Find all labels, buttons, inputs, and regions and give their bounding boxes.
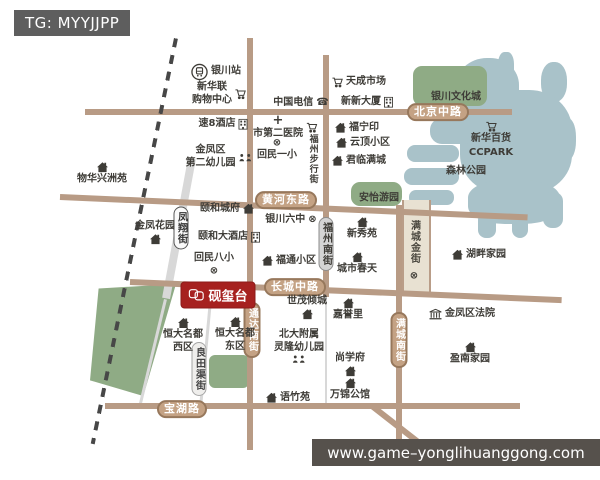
poi-xinxiu-yuan: 新秀苑: [347, 217, 377, 241]
poi-label: 福州步行街: [306, 134, 317, 184]
area-label-forest-park: 森林公园: [446, 162, 486, 177]
house-icon: [178, 318, 189, 328]
poi-xinhualian-mall: 新华联 购物中心: [192, 82, 246, 107]
house-icon: [345, 378, 356, 388]
school-icon: ⊗: [210, 266, 218, 276]
poi-label: 湖畔家园: [466, 249, 506, 262]
poi-label: 嘉誉里: [333, 309, 363, 322]
poi-label: 金凤花园: [135, 220, 175, 233]
poi-label: 银川六中: [265, 214, 305, 227]
poi-wuhua-xingzhouyuan: 物华兴洲苑: [77, 162, 127, 186]
poi-su8-hotel: 速8酒店: [199, 118, 248, 131]
poi-jinfeng-2nd-kindergarten: 金凤区 第二幼儿园: [186, 145, 253, 170]
poi-label: 恒大名都 西区: [163, 329, 203, 354]
hospital-cross-icon: +: [273, 114, 284, 127]
house-icon: [230, 317, 241, 327]
shopping-cart-icon: [486, 121, 497, 132]
building-icon: [384, 97, 393, 108]
road-label-mancheng-south: 满城南街: [391, 312, 408, 368]
building-icon: [251, 232, 260, 243]
area-label-anyi-garden: 安怡游园: [359, 189, 399, 204]
poi-yuzhuyuan: 语竹苑: [266, 392, 310, 405]
road-label-fengxiang: 凤翔街: [174, 207, 189, 250]
poi-yihe-chengfu: 颐和城府: [200, 203, 254, 216]
house-icon: [150, 234, 161, 244]
house-icon: [302, 309, 313, 319]
kids-icon: [239, 153, 253, 161]
poi-yunding-xiaoqu: 云顶小区: [336, 137, 390, 150]
poi-label: 速8酒店: [199, 118, 236, 131]
house-icon: [345, 366, 356, 376]
road-label-changcheng-middle: 长城中路: [264, 278, 326, 296]
building-icon: [238, 119, 247, 130]
house-icon: [343, 298, 354, 308]
poi-label: 尚学府: [335, 352, 365, 365]
area-label-culture-city: 银川文化城: [431, 88, 481, 103]
poi-yingnan-jiayuan: 盈南家园: [450, 342, 490, 366]
poi-xinhua-department-store: 新华百货 CCPARK: [469, 121, 513, 159]
poi-xinxin-building: 新新大厦: [341, 96, 393, 109]
poi-beida-kindergarten: 北大附属 灵隆幼儿园: [274, 329, 324, 363]
poi-label: 城市春天: [337, 263, 377, 276]
house-icon: [452, 250, 463, 260]
poi-label: 金凤区 第二幼儿园: [186, 145, 236, 170]
green-area-small: [209, 355, 249, 388]
poi-label: 天成市场: [346, 76, 386, 89]
house-icon: [332, 156, 343, 166]
school-icon: ⊗: [273, 138, 281, 148]
tg-badge: TG: MYYJJPP: [14, 10, 130, 36]
poi-yinchuan-station: 银川站: [191, 64, 241, 81]
poi-label: 恒大名都 东区: [215, 328, 255, 353]
poi-shangxuefu: 尚学府: [335, 352, 365, 376]
lake-shape: [512, 208, 528, 238]
house-icon: [357, 217, 368, 227]
poi-label: 语竹苑: [280, 392, 310, 405]
road-label-mancheng-golden: 满城金街: [408, 216, 421, 268]
courthouse-icon: [429, 309, 442, 320]
poi-hengda-west: 恒大名都 西区: [163, 318, 203, 354]
lake-shape: [543, 192, 563, 228]
house-icon: [335, 123, 346, 133]
poi-yinchuan-no6-middle: 银川六中 ⊗: [265, 214, 316, 227]
poi-china-telecom: 中国电信 ☎: [273, 97, 328, 110]
poi-funingyin: 福宁印: [335, 122, 379, 135]
poi-label: 新秀苑: [347, 228, 377, 241]
school-icon: ⊗: [308, 215, 316, 225]
shopping-cart-icon: [332, 77, 343, 88]
road-label-fuzhou-south: 福州南街: [319, 217, 334, 271]
lake-shape: [498, 52, 514, 82]
poi-label: 云顶小区: [350, 137, 390, 150]
lake-shape: [407, 145, 459, 162]
poi-label: 金凤区法院: [445, 308, 495, 321]
shopping-cart-icon: [307, 122, 318, 133]
house-icon: [336, 138, 347, 148]
poi-label: 万锦公馆: [330, 389, 370, 402]
poi-jiayuli: 嘉誉里: [333, 298, 363, 322]
poi-huimin-no8-primary: 回民八小 ⊗: [194, 252, 234, 276]
poi-label: 新新大厦: [341, 96, 381, 109]
shopping-cart-icon: [235, 89, 246, 100]
poi-label: 盈南家园: [450, 353, 490, 366]
house-icon: [262, 256, 273, 266]
project-marker-yanxitai: 砚玺台: [181, 283, 254, 308]
lake-shape: [558, 118, 576, 160]
poi-huimin-no1-primary: ⊗ 回民一小: [257, 138, 297, 162]
poi-hengda-east: 恒大名都 东区: [215, 317, 255, 353]
poi-tiancheng-market: 天成市场: [332, 76, 386, 89]
poi-futong-xiaoqu: 福通小区: [262, 255, 316, 268]
train-station-icon: [191, 64, 208, 81]
road-tongda-south: [247, 38, 253, 450]
poi-hupan-jiayuan: 湖畔家园: [452, 249, 506, 262]
poi-label: 银川站: [211, 66, 241, 79]
poi-label: 物华兴洲苑: [77, 173, 127, 186]
road-label-huanghe-east: 黄河东路: [255, 191, 317, 209]
house-icon: [243, 204, 254, 214]
kids-icon: [292, 355, 306, 363]
poi-fuzhou-pedestrian-street: 福州步行街: [306, 122, 317, 184]
road-label-beijing-middle: 北京中路: [407, 103, 469, 121]
poi-label: 福宁印: [349, 122, 379, 135]
poi-jinfeng-court: 金凤区法院: [429, 308, 495, 321]
map-canvas: 北京中路 黄河东路 长城中路 宝湖路 通达南街 满城南街 福州南街 凤翔街 良田…: [0, 0, 600, 480]
poi-label: 新华百货: [471, 133, 511, 146]
project-logo-icon: [188, 289, 204, 302]
poi-junlin-mancheng: 君临满城: [332, 155, 386, 168]
poi-label: 中国电信: [273, 97, 313, 110]
poi-label: 北大附属 灵隆幼儿园: [274, 329, 324, 354]
watermark-url: www.game–yonglihuanggong.com: [312, 439, 600, 466]
poi-label: 世茂倾城: [287, 295, 327, 308]
house-icon: [97, 162, 108, 172]
poi-chengshi-chuntian: 城市春天: [337, 252, 377, 276]
poi-label: 颐和大酒店: [198, 231, 248, 244]
poi-label: 回民八小: [194, 252, 234, 265]
poi-label: 颐和城府: [200, 203, 240, 216]
phone-icon: ☎: [316, 98, 328, 108]
poi-jinfeng-garden: 金凤花园: [135, 220, 175, 244]
house-icon: [352, 252, 363, 262]
house-icon: [266, 393, 277, 403]
poi-shimao-qingcheng: 世茂倾城: [287, 295, 327, 319]
school-icon: ⊗: [410, 271, 418, 282]
project-label: 砚玺台: [208, 286, 247, 305]
poi-label: 福通小区: [276, 255, 316, 268]
poi-wanjin-gongguan: 万锦公馆: [330, 378, 370, 402]
poi-label: 君临满城: [346, 155, 386, 168]
poi-yihe-hotel: 颐和大酒店: [198, 231, 260, 244]
house-icon: [465, 342, 476, 352]
poi-label: 新华联 购物中心: [192, 82, 232, 107]
poi-label-ccpark: CCPARK: [469, 147, 513, 160]
road-label-baohu: 宝湖路: [157, 400, 207, 418]
poi-label: 回民一小: [257, 149, 297, 162]
